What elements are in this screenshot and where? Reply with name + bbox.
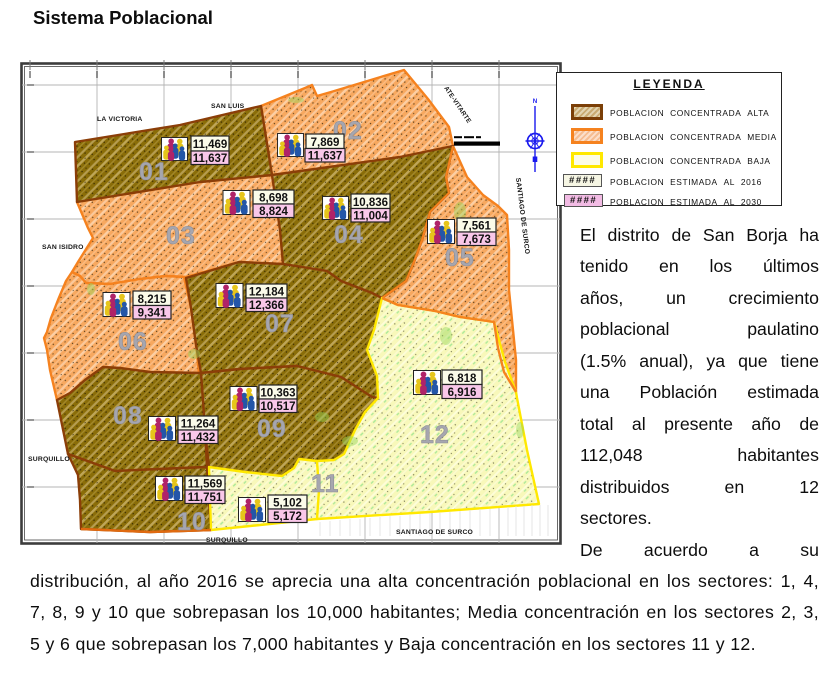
svg-text:11,469: 11,469 (193, 139, 228, 151)
svg-text:10,363: 10,363 (260, 388, 295, 400)
svg-text:12,366: 12,366 (249, 300, 284, 312)
svg-text:SAN ISIDRO: SAN ISIDRO (42, 244, 84, 251)
svg-text:7,869: 7,869 (311, 137, 340, 149)
svg-text:SURQUILLO: SURQUILLO (206, 537, 248, 544)
svg-text:8,824: 8,824 (259, 206, 288, 218)
svg-text:6,818: 6,818 (448, 373, 477, 385)
svg-text:12: 12 (420, 421, 450, 449)
svg-text:11,637: 11,637 (308, 151, 343, 163)
svg-text:08: 08 (113, 402, 143, 430)
svg-text:03: 03 (166, 222, 196, 250)
svg-text:11,432: 11,432 (181, 432, 216, 444)
svg-text:11,004: 11,004 (353, 211, 388, 223)
svg-text:04: 04 (334, 221, 364, 249)
svg-text:06: 06 (118, 328, 148, 356)
svg-text:SANTIAGO DE SURCO: SANTIAGO DE SURCO (396, 529, 473, 536)
svg-text:8,698: 8,698 (259, 193, 288, 205)
svg-text:N: N (533, 98, 538, 105)
svg-text:05: 05 (445, 244, 475, 272)
svg-text:11,637: 11,637 (193, 153, 228, 165)
svg-text:09: 09 (257, 415, 287, 443)
svg-text:12,184: 12,184 (249, 287, 285, 299)
svg-text:10,836: 10,836 (353, 197, 388, 209)
svg-text:7,561: 7,561 (462, 221, 491, 233)
svg-text:11,751: 11,751 (188, 492, 223, 504)
svg-text:11,264: 11,264 (181, 419, 216, 431)
svg-text:5,102: 5,102 (273, 498, 302, 510)
svg-text:11: 11 (311, 470, 339, 498)
svg-text:SURQUILLO: SURQUILLO (28, 456, 70, 463)
svg-text:01: 01 (139, 158, 169, 186)
svg-text:6,916: 6,916 (448, 387, 477, 399)
svg-text:8,215: 8,215 (138, 294, 167, 306)
svg-text:10: 10 (177, 508, 207, 536)
svg-text:10,517: 10,517 (260, 401, 295, 413)
svg-text:07: 07 (265, 310, 295, 338)
svg-text:LA VICTORIA: LA VICTORIA (97, 116, 143, 123)
svg-text:7,673: 7,673 (462, 234, 491, 246)
svg-text:5,172: 5,172 (273, 511, 302, 523)
svg-text:9,341: 9,341 (138, 308, 167, 320)
svg-text:11,569: 11,569 (188, 479, 223, 491)
svg-text:SAN LUIS: SAN LUIS (211, 103, 245, 110)
